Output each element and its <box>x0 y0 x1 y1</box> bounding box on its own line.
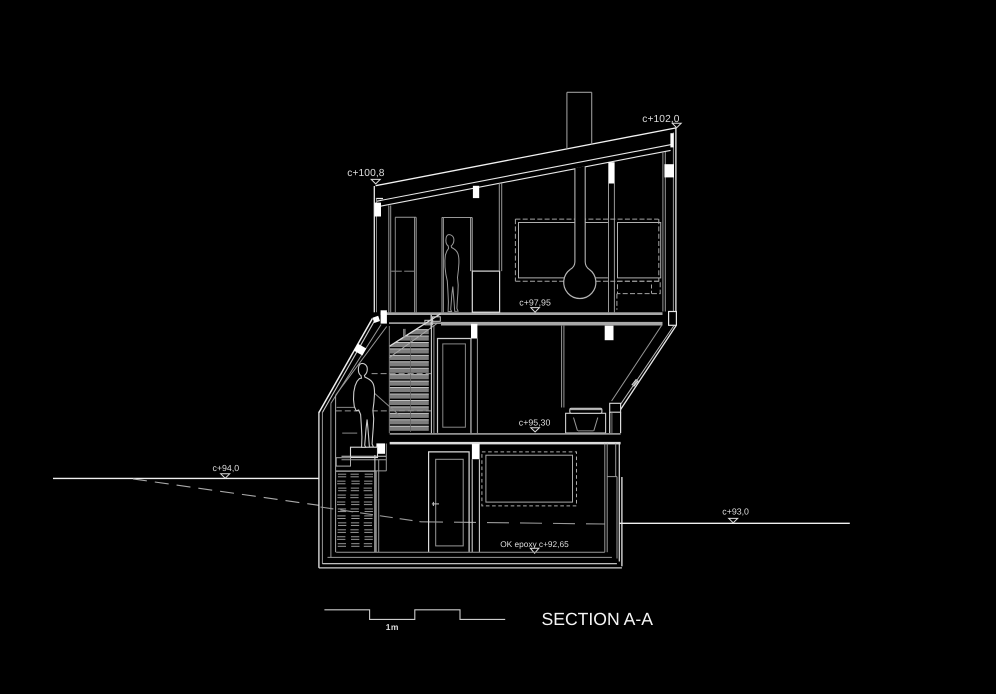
svg-text:c+95,30: c+95,30 <box>519 417 551 427</box>
svg-text:OK epoxy c+92,65: OK epoxy c+92,65 <box>500 539 569 549</box>
svg-text:c+97,95: c+97,95 <box>519 297 551 307</box>
svg-text:c+93,0: c+93,0 <box>722 506 749 516</box>
svg-text:c+94,0: c+94,0 <box>213 463 240 473</box>
svg-text:1m: 1m <box>386 622 399 632</box>
svg-text:SECTION A-A: SECTION A-A <box>542 609 654 629</box>
svg-text:c+100,8: c+100,8 <box>347 168 384 179</box>
